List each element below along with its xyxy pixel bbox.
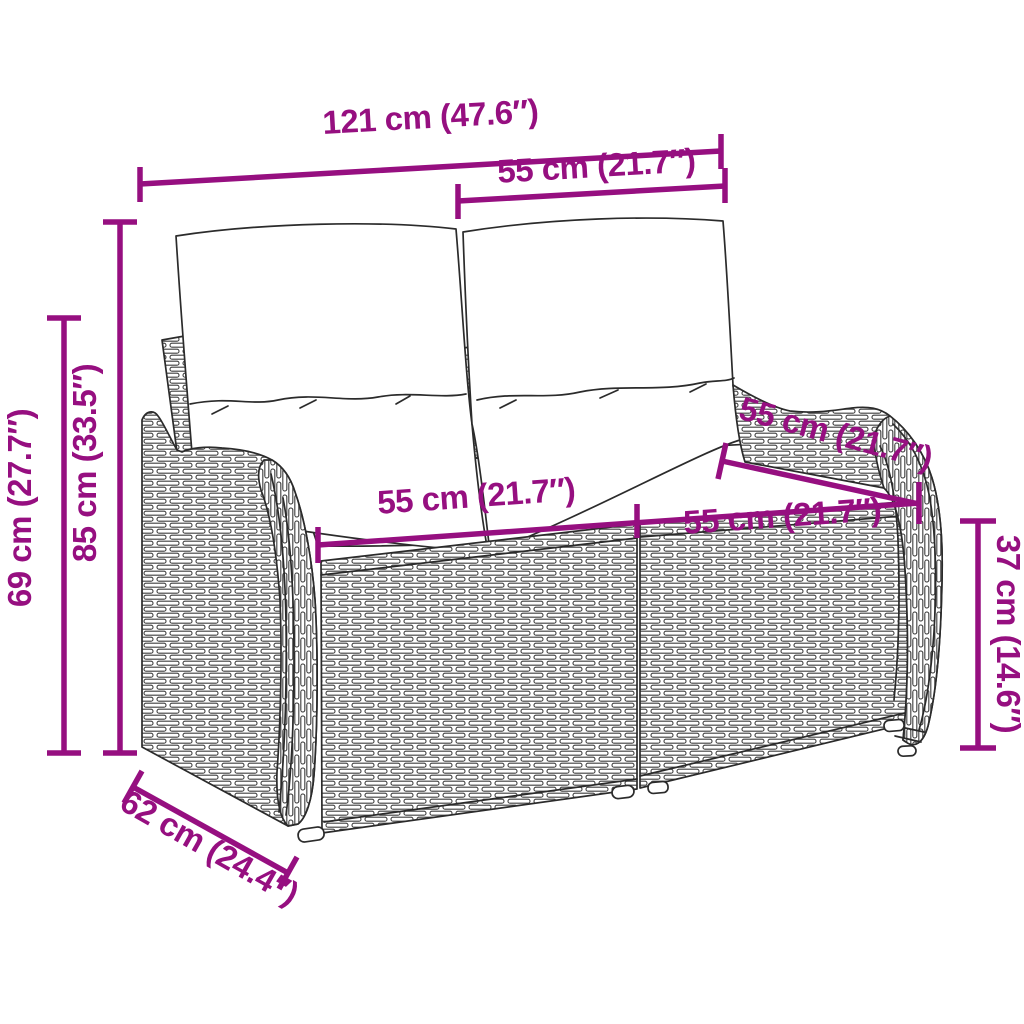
dimension-label-overall-height: 85 cm (33.5″): [66, 364, 103, 562]
foot: [611, 785, 634, 800]
dimension-label-backrest-cushion-width: 55 cm (21.7″): [496, 141, 696, 190]
dimension-label-overall-width: 121 cm (47.6″): [321, 92, 539, 141]
base-box-right: [640, 501, 913, 788]
foot: [648, 781, 669, 794]
foot: [898, 746, 916, 757]
diagram-canvas: 121 cm (47.6″) 55 cm (21.7″) 85 cm (33.5…: [0, 0, 1024, 1024]
dimension-label-side-height: 69 cm (27.7″): [1, 409, 38, 607]
foot: [297, 826, 325, 842]
foot: [884, 719, 905, 732]
dim-overall-height: [103, 222, 137, 753]
dimension-label-seat-height: 37 cm (14.6″): [990, 535, 1024, 733]
base-box-left: [321, 524, 637, 833]
